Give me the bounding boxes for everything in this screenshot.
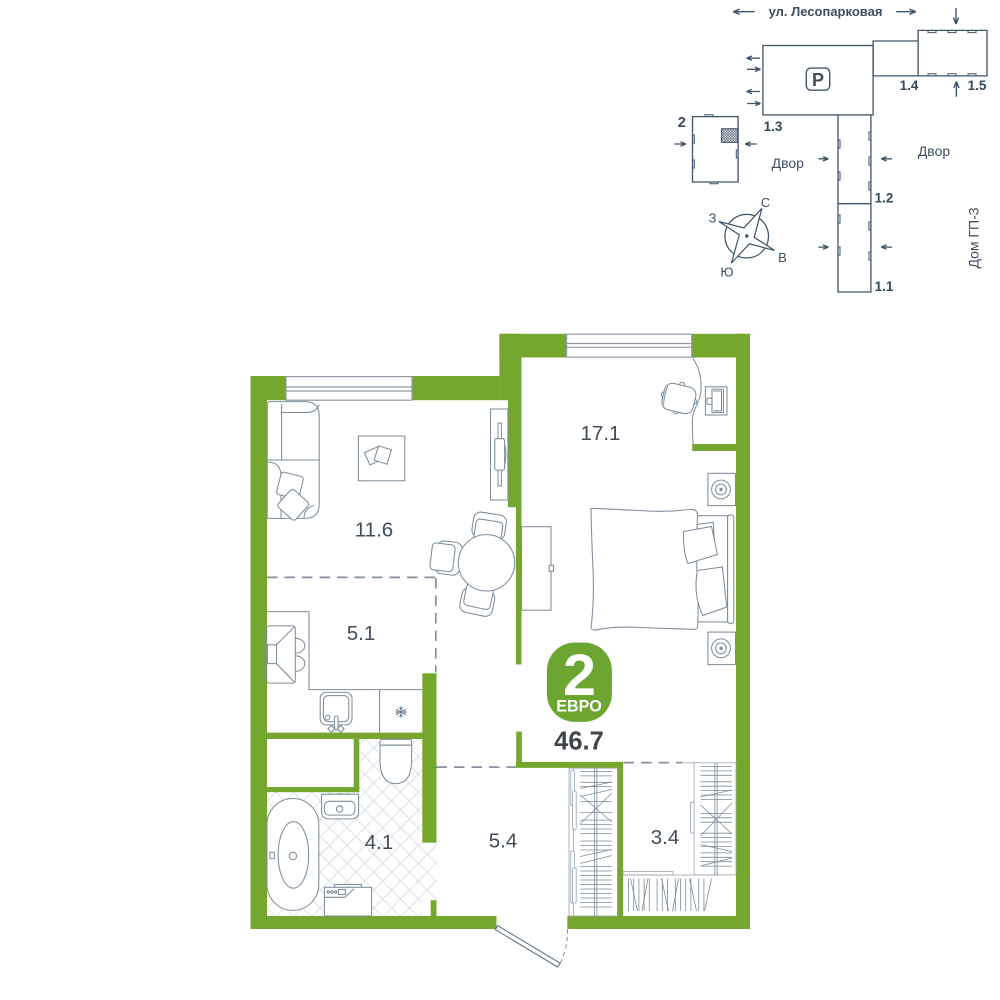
svg-text:17.1: 17.1 — [581, 422, 621, 445]
svg-text:1.5: 1.5 — [968, 78, 987, 93]
svg-text:P: P — [812, 70, 824, 90]
svg-text:3.4: 3.4 — [651, 826, 680, 849]
svg-text:Ю: Ю — [720, 265, 733, 280]
svg-text:З: З — [709, 211, 717, 226]
svg-text:1.1: 1.1 — [875, 279, 894, 294]
svg-text:46.7: 46.7 — [554, 728, 604, 756]
svg-text:4.1: 4.1 — [365, 831, 394, 854]
svg-text:ул. Лесопарковая: ул. Лесопарковая — [769, 4, 883, 19]
svg-text:Дом ГП-3: Дом ГП-3 — [965, 207, 981, 268]
svg-text:11.6: 11.6 — [355, 519, 393, 542]
svg-text:1.3: 1.3 — [764, 119, 783, 134]
svg-text:1.2: 1.2 — [875, 191, 894, 206]
svg-text:5.1: 5.1 — [347, 622, 376, 645]
svg-text:1.4: 1.4 — [900, 78, 919, 93]
svg-text:С: С — [761, 195, 770, 210]
svg-text:5.4: 5.4 — [489, 830, 518, 853]
svg-text:Двор: Двор — [772, 155, 805, 171]
svg-text:2: 2 — [678, 115, 686, 131]
svg-text:Двор: Двор — [918, 143, 951, 159]
svg-text:ЕВРО: ЕВРО — [556, 697, 602, 715]
svg-text:В: В — [778, 250, 787, 265]
